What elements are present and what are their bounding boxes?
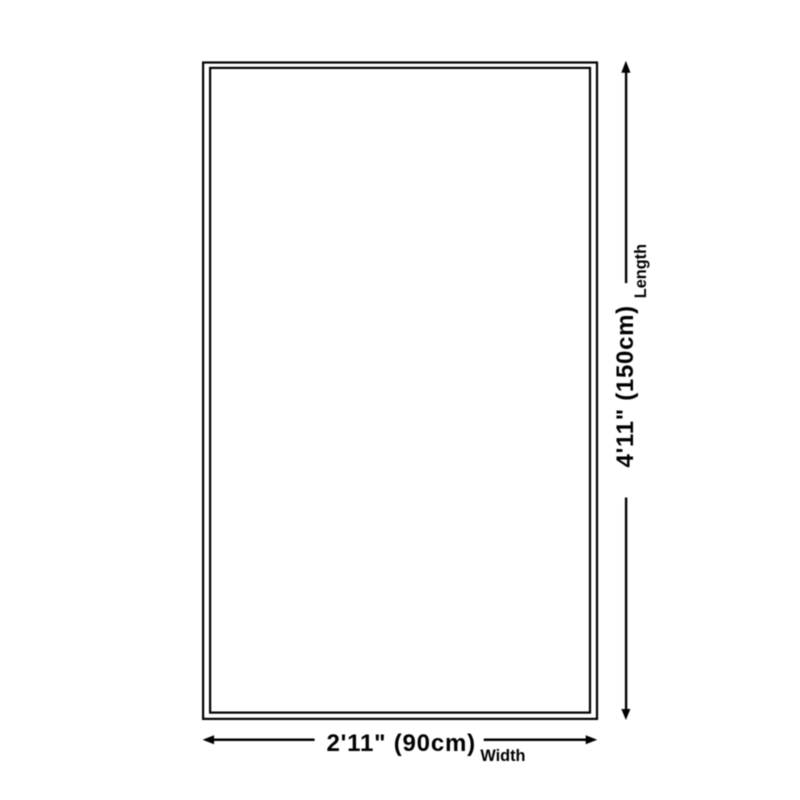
svg-text:2'11" (90cm): 2'11" (90cm) — [326, 730, 475, 757]
svg-text:Length: Length — [632, 244, 650, 298]
svg-text:4'11" (150cm): 4'11" (150cm) — [612, 305, 639, 467]
svg-text:Width: Width — [480, 747, 525, 765]
